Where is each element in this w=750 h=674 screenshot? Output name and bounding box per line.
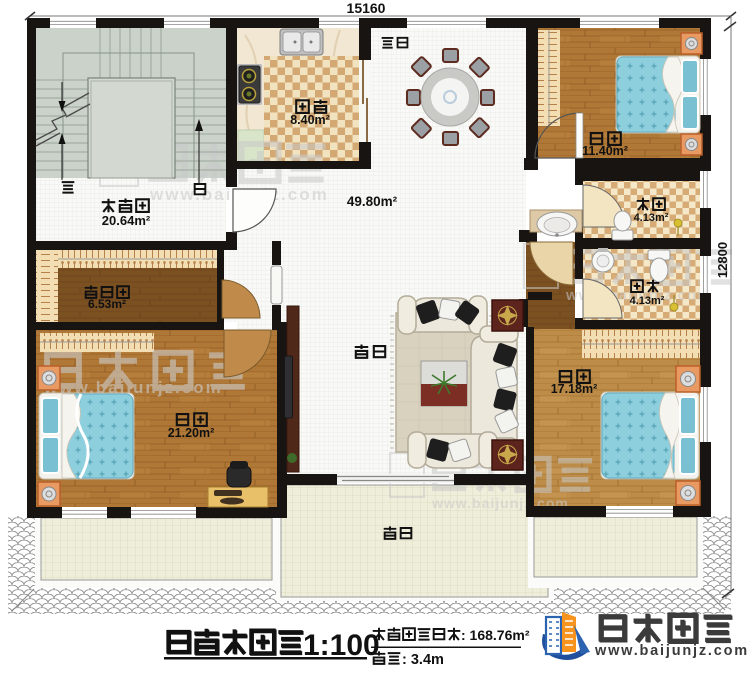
svg-text:www.baijunjz.com: www.baijunjz.com xyxy=(594,643,749,659)
svg-text:17.18m²: 17.18m² xyxy=(551,382,598,396)
svg-text:49.80m²: 49.80m² xyxy=(347,194,398,209)
svg-text:15160: 15160 xyxy=(347,0,386,16)
svg-text:6.53m²: 6.53m² xyxy=(88,297,126,311)
svg-text:8.40m²: 8.40m² xyxy=(290,113,330,127)
svg-text:: 3.4m: : 3.4m xyxy=(402,652,444,668)
svg-text:4.13m²: 4.13m² xyxy=(634,212,669,224)
svg-text:4.13m²: 4.13m² xyxy=(630,295,665,307)
svg-text:20.64m²: 20.64m² xyxy=(102,213,151,228)
svg-text:21.20m²: 21.20m² xyxy=(168,426,215,440)
svg-text:12800: 12800 xyxy=(715,242,730,278)
svg-text:: 168.76m²: : 168.76m² xyxy=(461,627,530,643)
svg-text:11.40m²: 11.40m² xyxy=(582,144,628,158)
